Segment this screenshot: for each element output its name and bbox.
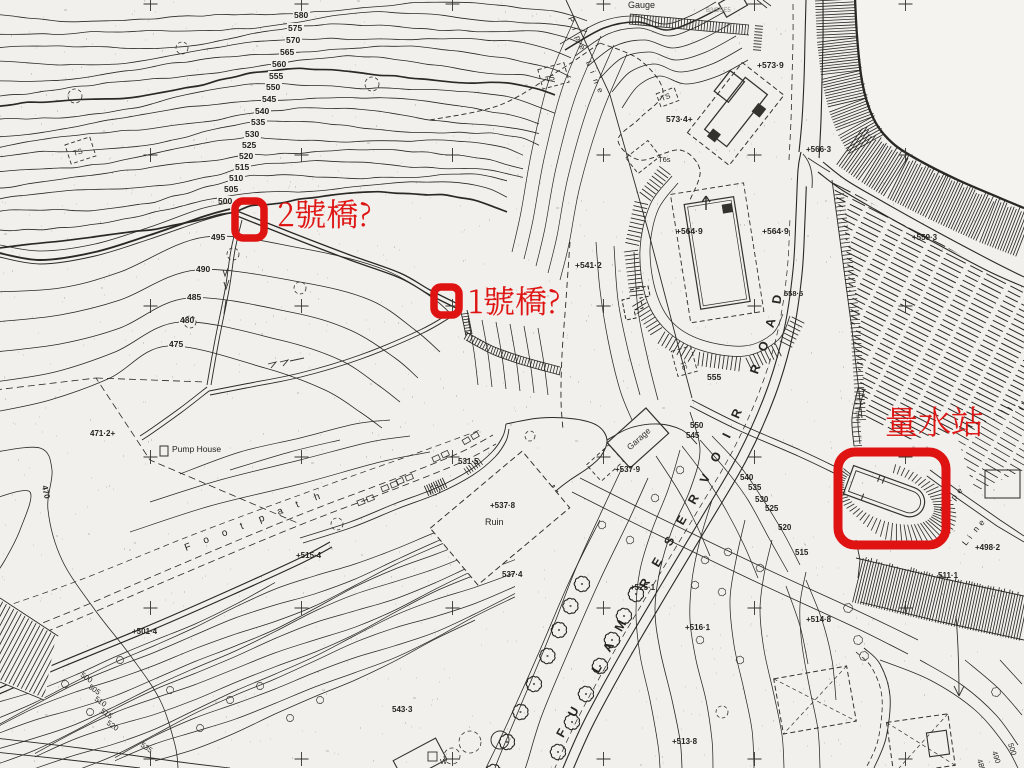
svg-text:471·2+: 471·2+ xyxy=(90,429,115,438)
svg-text:505: 505 xyxy=(224,184,238,194)
svg-text:520: 520 xyxy=(239,151,253,161)
svg-text:550: 550 xyxy=(266,82,280,92)
svg-text:+516·1: +516·1 xyxy=(685,623,711,632)
svg-text:+566·3: +566·3 xyxy=(806,145,832,154)
svg-text:550: 550 xyxy=(690,421,704,430)
svg-text:Pump House: Pump House xyxy=(172,444,221,454)
svg-text:575: 575 xyxy=(288,23,302,33)
svg-text:511·1: 511·1 xyxy=(938,571,959,580)
svg-text:+515·4: +515·4 xyxy=(296,551,322,560)
svg-text:537·4: 537·4 xyxy=(502,570,523,579)
svg-text:515: 515 xyxy=(795,548,809,557)
svg-text:490: 490 xyxy=(196,264,210,274)
svg-text:+573·9: +573·9 xyxy=(757,60,784,70)
svg-text:Gauge: Gauge xyxy=(628,0,655,10)
svg-text:540: 540 xyxy=(740,473,754,482)
svg-text:+537·8: +537·8 xyxy=(490,501,516,510)
svg-text:+537·9: +537·9 xyxy=(615,465,641,474)
svg-text:Ruin: Ruin xyxy=(485,517,504,527)
svg-text:B3/5/5E5: B3/5/5E5 xyxy=(706,8,731,14)
svg-text:510: 510 xyxy=(229,173,243,183)
svg-text:580: 580 xyxy=(294,10,308,20)
svg-text:+514·8: +514·8 xyxy=(806,615,832,624)
svg-text:+541·2: +541·2 xyxy=(575,260,602,270)
svg-text:531·5: 531·5 xyxy=(458,457,479,466)
svg-text:495: 495 xyxy=(211,232,225,242)
svg-text:475: 475 xyxy=(169,339,183,349)
svg-text:545: 545 xyxy=(262,94,276,104)
svg-text:485: 485 xyxy=(187,292,201,302)
svg-text:+564·9: +564·9 xyxy=(676,226,703,236)
svg-text:535: 535 xyxy=(251,117,265,127)
svg-text:530: 530 xyxy=(245,129,259,139)
svg-text:570: 570 xyxy=(286,35,300,45)
svg-text:+525·1: +525·1 xyxy=(630,583,656,592)
svg-text:+513·8: +513·8 xyxy=(672,737,698,746)
svg-text:543·3: 543·3 xyxy=(392,705,413,714)
svg-text:573·4+: 573·4+ xyxy=(666,114,693,124)
svg-text:525: 525 xyxy=(242,140,256,150)
svg-text:530: 530 xyxy=(755,495,769,504)
svg-text:+498·2: +498·2 xyxy=(975,543,1001,552)
svg-text:515: 515 xyxy=(235,162,249,172)
svg-text:T6s: T6s xyxy=(658,155,671,164)
svg-text:+564·9: +564·9 xyxy=(762,226,789,236)
svg-text:565: 565 xyxy=(280,47,294,57)
svg-text:560: 560 xyxy=(272,59,286,69)
svg-text:555: 555 xyxy=(269,71,283,81)
svg-text:+501·4: +501·4 xyxy=(132,627,158,636)
svg-text:540: 540 xyxy=(255,106,269,116)
svg-text:555: 555 xyxy=(707,372,721,382)
